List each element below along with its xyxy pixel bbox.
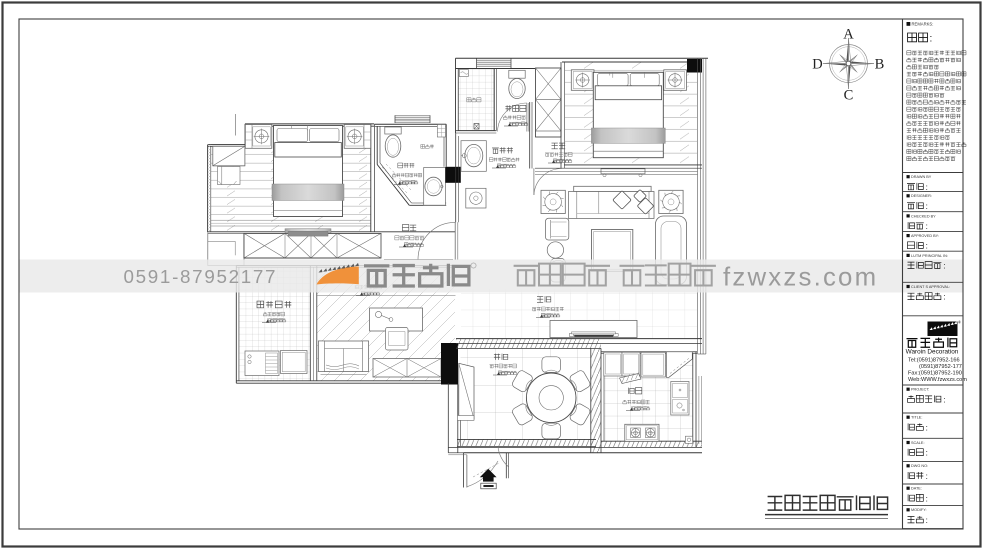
svg-text:REMARKS:: REMARKS: [912, 22, 934, 27]
svg-text:MODIFY:: MODIFY: [911, 508, 927, 512]
svg-text::: : [926, 494, 928, 503]
svg-text::: : [930, 34, 933, 45]
svg-text:LUTM PRINCIPAL IN:: LUTM PRINCIPAL IN: [911, 254, 948, 258]
svg-text:DRAWN BY: DRAWN BY [911, 175, 932, 179]
svg-text:Waroin Decoration: Waroin Decoration [906, 349, 959, 356]
svg-text::: : [926, 472, 928, 481]
svg-text:(0591)87952-177: (0591)87952-177 [919, 364, 962, 370]
svg-text:Fax:(0591)87952-190: Fax:(0591)87952-190 [908, 371, 962, 377]
svg-text::: : [943, 262, 945, 271]
svg-text::: : [926, 516, 928, 525]
svg-text::: : [926, 183, 928, 192]
svg-text:®: ® [958, 320, 961, 325]
svg-text:A: A [843, 27, 854, 43]
svg-text:Tel:(0591)87952-166: Tel:(0591)87952-166 [908, 358, 960, 364]
svg-text:Web:WWW.fzwxzs.com: Web:WWW.fzwxzs.com [908, 377, 967, 383]
svg-text::: : [926, 449, 928, 458]
svg-text:APPROVED BY:: APPROVED BY: [911, 234, 939, 238]
svg-text:DESIGNER:: DESIGNER: [911, 194, 932, 198]
svg-text:CLIENT S APPROVAL:: CLIENT S APPROVAL: [911, 285, 950, 289]
svg-text::: : [926, 202, 928, 211]
svg-text:PROJECT:: PROJECT: [911, 388, 929, 392]
svg-text:TITLE:: TITLE: [911, 416, 922, 420]
svg-text::: : [943, 395, 945, 404]
svg-text::: : [926, 242, 928, 251]
svg-text:fzwxzs.com: fzwxzs.com [723, 264, 878, 292]
svg-text:D: D [812, 56, 822, 72]
svg-text:B: B [875, 56, 885, 72]
svg-text::: : [943, 293, 945, 302]
svg-text:C: C [844, 88, 854, 104]
svg-text:CHECKED BY: CHECKED BY [911, 214, 936, 218]
svg-text:DWG NO:: DWG NO: [911, 464, 928, 468]
svg-text::: : [926, 423, 928, 432]
svg-text:SCALE:: SCALE: [911, 441, 925, 445]
svg-text:0591-87952177: 0591-87952177 [124, 266, 278, 287]
svg-text:DATE:: DATE: [911, 487, 922, 491]
svg-text::: : [926, 222, 928, 231]
